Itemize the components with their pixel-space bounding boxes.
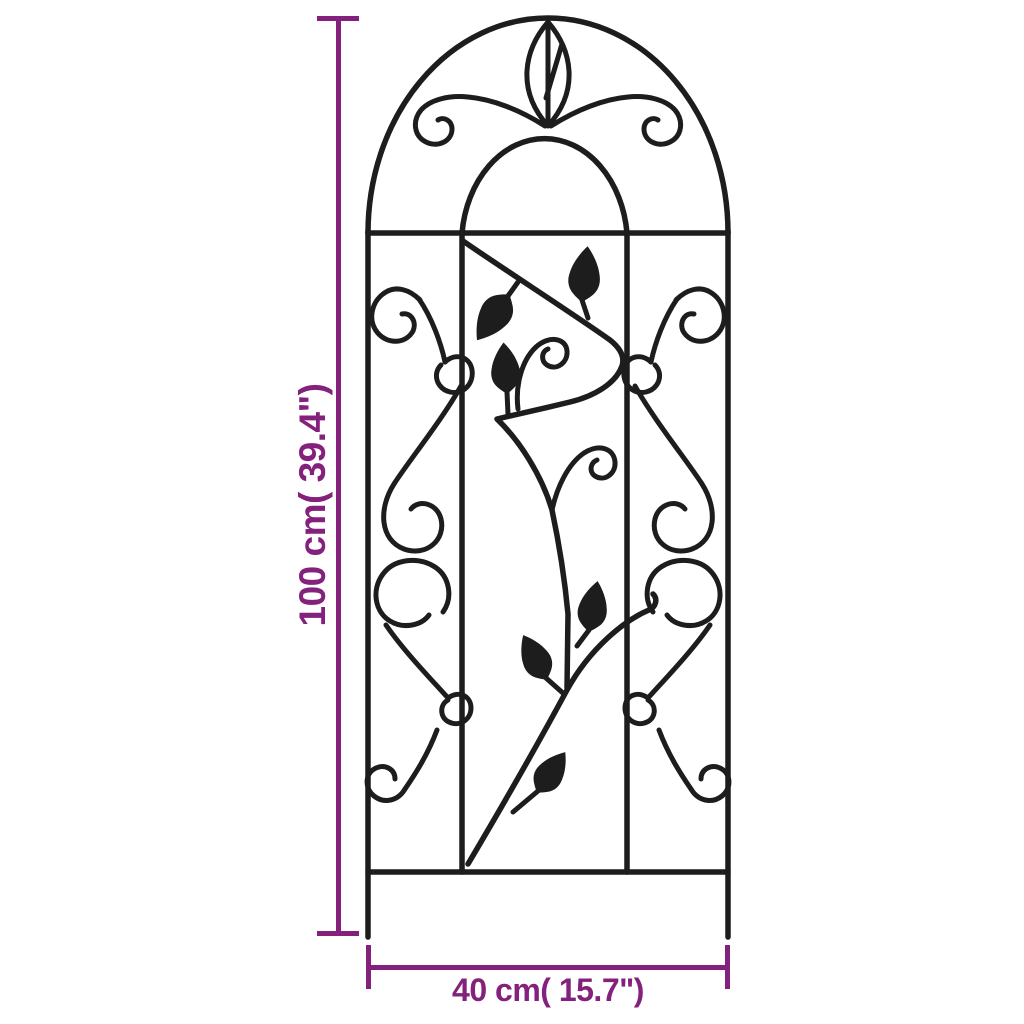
height-dimension-bottom-cap [317, 931, 359, 936]
trellis-illustration [0, 0, 1024, 1024]
leaf-stems [507, 282, 589, 812]
vine-leaf [511, 628, 560, 686]
height-dimension-label: 100 cm( 39.4") [292, 384, 334, 627]
vine-leaf [464, 285, 522, 349]
vine-curl-upper [517, 339, 567, 409]
width-dimension-label: 40 cm( 15.7") [452, 972, 644, 1009]
left-scrollwork [367, 289, 472, 801]
vine-curl-lower [552, 448, 615, 510]
width-dimension-left-cap [366, 945, 371, 989]
height-dimension-line [336, 18, 341, 935]
product-dimension-diagram: 100 cm( 39.4") 40 cm( 15.7") [0, 0, 1024, 1024]
width-dimension-right-cap [725, 945, 730, 989]
vine-leaf [574, 579, 612, 635]
vine-leaf [566, 245, 603, 304]
height-dimension-top-cap [317, 16, 359, 21]
right-scrollwork [624, 289, 729, 801]
trellis-frame [368, 231, 728, 937]
width-dimension-line [368, 965, 728, 970]
top-leaf-ornament [527, 22, 569, 126]
